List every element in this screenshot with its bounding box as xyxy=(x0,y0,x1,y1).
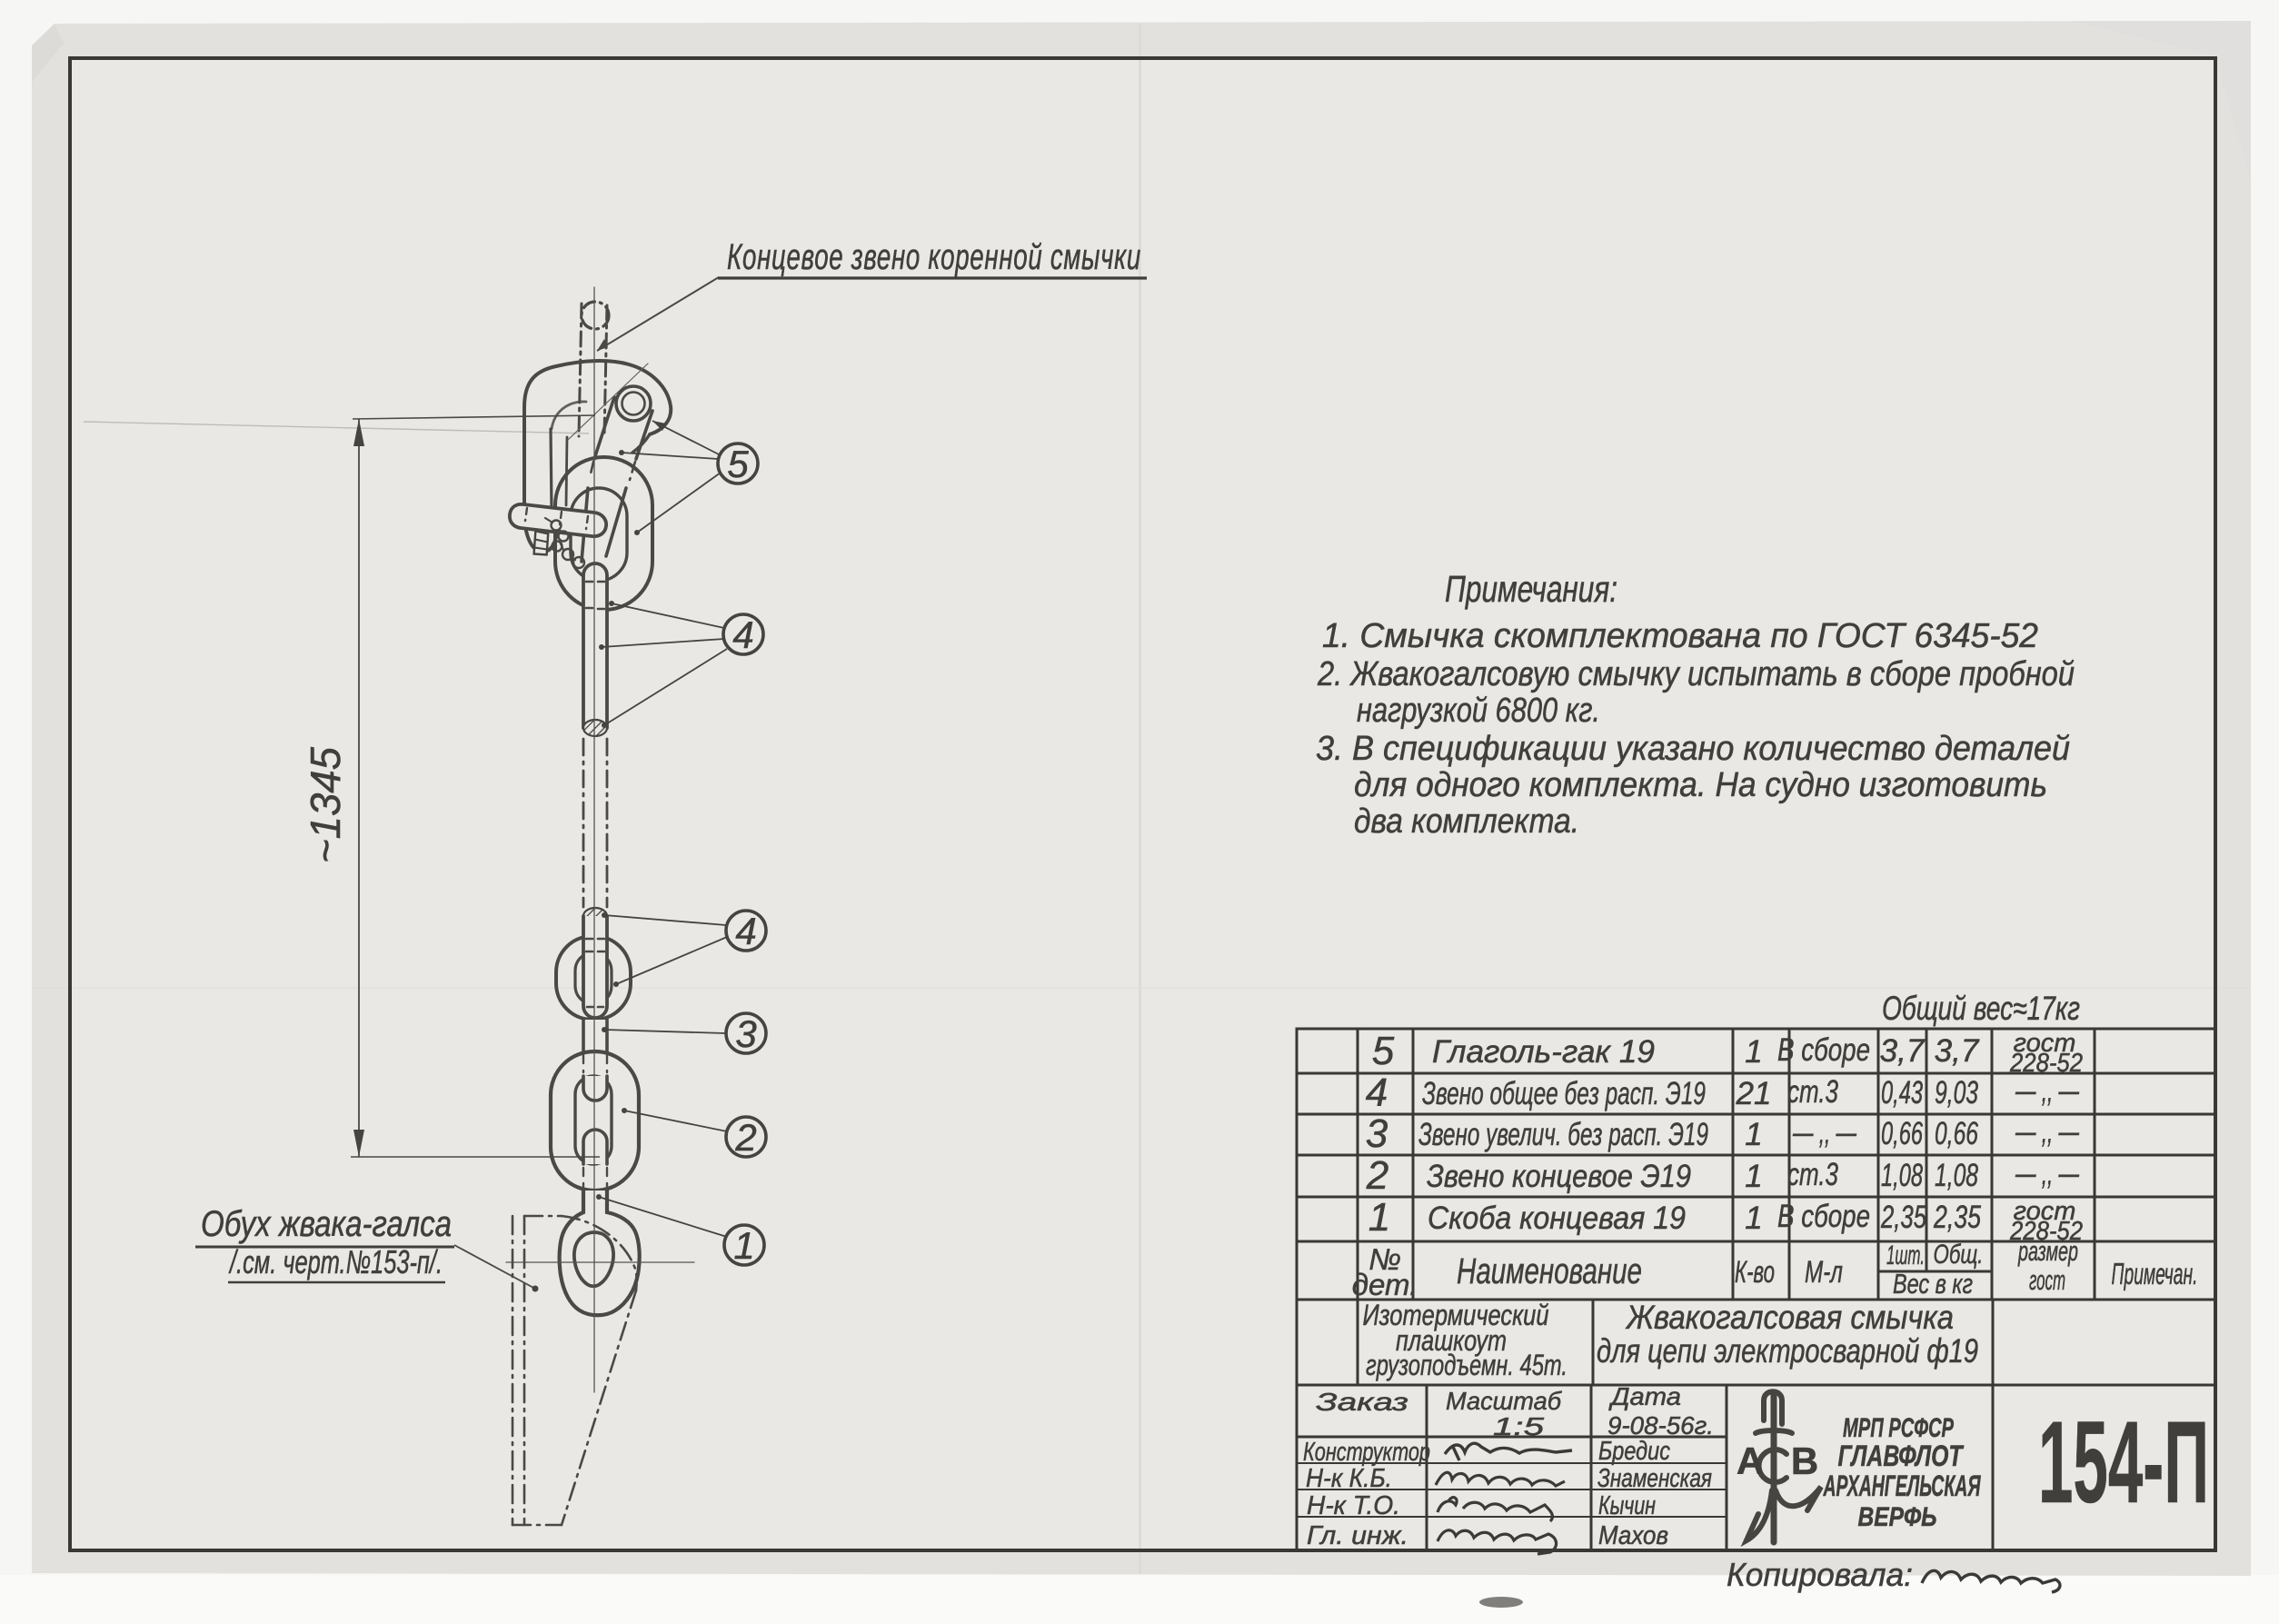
svg-text:2: 2 xyxy=(734,1116,756,1159)
svg-text:5: 5 xyxy=(727,443,749,485)
svg-text:Общий вес≈17кг: Общий вес≈17кг xyxy=(1882,990,2080,1027)
svg-text:3. В спецификации указано к: 3. В спецификации указано количество дет… xyxy=(1316,730,2070,768)
svg-text:0,43: 0,43 xyxy=(1881,1075,1923,1111)
svg-text:9-08-56г.: 9-08-56г. xyxy=(1607,1411,1714,1440)
svg-text:1: 1 xyxy=(1745,1201,1762,1236)
svg-text:/.см. черт.№153-п/.: /.см. черт.№153-п/. xyxy=(228,1243,443,1280)
svg-text:154-П: 154-П xyxy=(2038,1398,2209,1528)
svg-text:Бредис: Бредис xyxy=(1598,1437,1670,1466)
svg-text:Примечания:: Примечания: xyxy=(1445,568,1617,610)
svg-text:Общ.: Общ. xyxy=(1934,1240,1984,1270)
svg-text:2. Жвакогалсовую смычку исп: 2. Жвакогалсовую смычку испытать в сборе… xyxy=(1317,655,2075,693)
svg-text:2,35: 2,35 xyxy=(1933,1200,1981,1235)
svg-text:размер: размер xyxy=(2017,1235,2078,1267)
svg-text:Скоба концевая 19: Скоба концевая 19 xyxy=(1428,1201,1686,1236)
svg-text:нагрузкой 6800 кг.: нагрузкой 6800 кг. xyxy=(1357,692,1600,730)
svg-text:АРХАНГЕЛЬСКАЯ: АРХАНГЕЛЬСКАЯ xyxy=(1823,1470,1981,1502)
svg-text:В: В xyxy=(1791,1440,1818,1482)
svg-text:4: 4 xyxy=(1366,1071,1388,1115)
svg-text:грузоподъемн. 45т.: грузоподъемн. 45т. xyxy=(1366,1349,1567,1381)
svg-text:2,35: 2,35 xyxy=(1880,1200,1926,1235)
svg-text:1шт.: 1шт. xyxy=(1886,1240,1925,1270)
svg-text:К-во: К-во xyxy=(1735,1255,1775,1290)
svg-text:В сборе: В сборе xyxy=(1777,1199,1870,1234)
svg-text:Н-к Т.О.: Н-к Т.О. xyxy=(1307,1491,1400,1520)
svg-text:М-л: М-л xyxy=(1805,1255,1843,1290)
svg-text:— ,, —: — ,, — xyxy=(2015,1114,2079,1150)
svg-text:0,66: 0,66 xyxy=(1935,1116,1978,1151)
svg-text:ГЛАВФЛОТ: ГЛАВФЛОТ xyxy=(1838,1440,1965,1472)
svg-text:— ,, —: — ,, — xyxy=(2015,1156,2079,1191)
svg-text:Масштаб: Масштаб xyxy=(1446,1387,1562,1415)
svg-text:ст.3: ст.3 xyxy=(1787,1157,1838,1192)
svg-text:Кычин: Кычин xyxy=(1598,1491,1656,1520)
svg-text:ВЕРФЬ: ВЕРФЬ xyxy=(1858,1502,1937,1532)
svg-text:В сборе: В сборе xyxy=(1777,1032,1870,1068)
svg-text:3,7: 3,7 xyxy=(1935,1033,1980,1069)
svg-text:Глаголь-гак 19: Глаголь-гак 19 xyxy=(1432,1034,1655,1070)
svg-text:1:5: 1:5 xyxy=(1493,1412,1545,1440)
svg-text:5: 5 xyxy=(1372,1029,1395,1073)
svg-text:Звено концевое Э19: Звено концевое Э19 xyxy=(1427,1159,1691,1194)
svg-text:Копировала:: Копировала: xyxy=(1727,1556,1913,1593)
svg-text:А: А xyxy=(1737,1440,1764,1482)
svg-text:— ,, —: — ,, — xyxy=(1792,1115,1856,1151)
svg-text:— ,, —: — ,, — xyxy=(2015,1073,2079,1109)
svg-text:1: 1 xyxy=(733,1224,754,1267)
svg-text:4: 4 xyxy=(732,613,753,656)
svg-text:3: 3 xyxy=(1366,1111,1388,1156)
svg-text:9,03: 9,03 xyxy=(1935,1075,1978,1111)
svg-text:3: 3 xyxy=(735,1012,756,1055)
svg-text:Звено увелич. без расп. Э19: Звено увелич. без расп. Э19 xyxy=(1418,1117,1708,1152)
svg-text:дет.: дет. xyxy=(1352,1268,1418,1301)
svg-text:Гл. инж.: Гл. инж. xyxy=(1307,1521,1408,1550)
svg-text:1: 1 xyxy=(1745,1159,1762,1194)
svg-text:4: 4 xyxy=(735,910,756,952)
svg-text:гост: гост xyxy=(2029,1264,2065,1296)
svg-text:Примечан.: Примечан. xyxy=(2112,1257,2198,1290)
svg-text:Обух жвака-галса: Обух жвака-галса xyxy=(201,1204,452,1244)
svg-text:Вес в кг: Вес в кг xyxy=(1893,1268,1973,1300)
svg-text:21: 21 xyxy=(1736,1076,1772,1111)
svg-text:1: 1 xyxy=(1745,1034,1762,1070)
svg-text:для цепи электросварной ф19: для цепи электросварной ф19 xyxy=(1597,1332,1978,1370)
svg-text:1. Смычка скомплектована по: 1. Смычка скомплектована по ГОСТ 6345-52 xyxy=(1322,617,2038,655)
svg-text:Махов: Махов xyxy=(1598,1521,1668,1550)
svg-text:ст.3: ст.3 xyxy=(1787,1074,1838,1110)
svg-text:Конструктор: Конструктор xyxy=(1303,1438,1430,1467)
svg-text:Дата: Дата xyxy=(1608,1382,1681,1410)
svg-text:Знаменская: Знаменская xyxy=(1597,1464,1712,1493)
svg-text:1,08: 1,08 xyxy=(1881,1158,1923,1193)
svg-text:~1345: ~1345 xyxy=(302,747,349,863)
svg-text:1: 1 xyxy=(1368,1195,1390,1240)
svg-text:Н-к К.Б.: Н-к К.Б. xyxy=(1306,1464,1392,1493)
svg-text:два комплекта.: два комплекта. xyxy=(1354,802,1579,841)
svg-text:для одного комплекта. На с: для одного комплекта. На судно изготовит… xyxy=(1354,766,2047,804)
svg-text:Заказ: Заказ xyxy=(1316,1388,1408,1416)
svg-text:1,08: 1,08 xyxy=(1935,1158,1978,1193)
svg-text:Звено общее без расп. Э19: Звено общее без расп. Э19 xyxy=(1422,1076,1706,1111)
svg-text:2: 2 xyxy=(1366,1153,1388,1198)
svg-text:Наименование: Наименование xyxy=(1457,1251,1642,1291)
svg-text:Концевое звено коренной смычки: Концевое звено коренной смычки xyxy=(727,237,1141,277)
svg-text:0,66: 0,66 xyxy=(1881,1116,1923,1151)
svg-text:Жвакогалсовая смычка: Жвакогалсовая смычка xyxy=(1625,1299,1954,1336)
svg-text:3,7: 3,7 xyxy=(1880,1033,1926,1069)
svg-text:1: 1 xyxy=(1745,1117,1762,1152)
